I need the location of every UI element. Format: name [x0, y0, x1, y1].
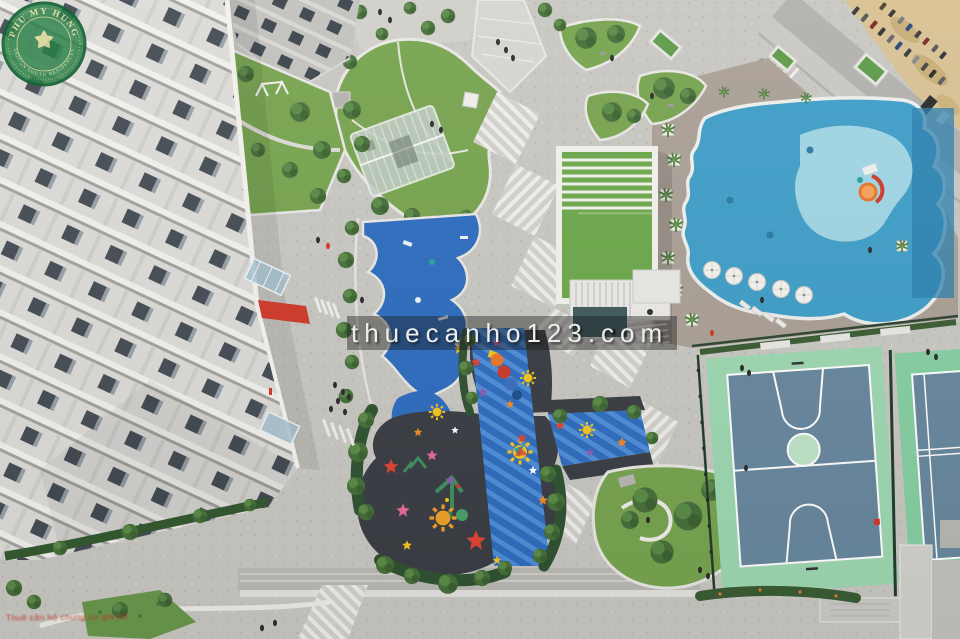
phu-my-hung-logo: PHU MY HUNG SAIGON SOUTH RESIDENCES — [0, 0, 88, 88]
swimming-pool — [683, 98, 954, 324]
lap-lane — [912, 108, 954, 298]
aerial-photo: thuecanho123.com PHU MY HUNG SAIGON SOUT… — [0, 0, 960, 639]
roof-pergola — [562, 160, 652, 208]
red-flag — [269, 388, 272, 395]
center-circle — [787, 433, 821, 467]
fine-print-watermark: Thuê căn hộ chung cư giá tốt — [6, 611, 128, 622]
clubhouse — [556, 146, 680, 344]
utility-cabin — [463, 92, 479, 108]
watermark-text: thuecanho123.com — [351, 316, 681, 350]
basketball-court — [696, 342, 898, 596]
